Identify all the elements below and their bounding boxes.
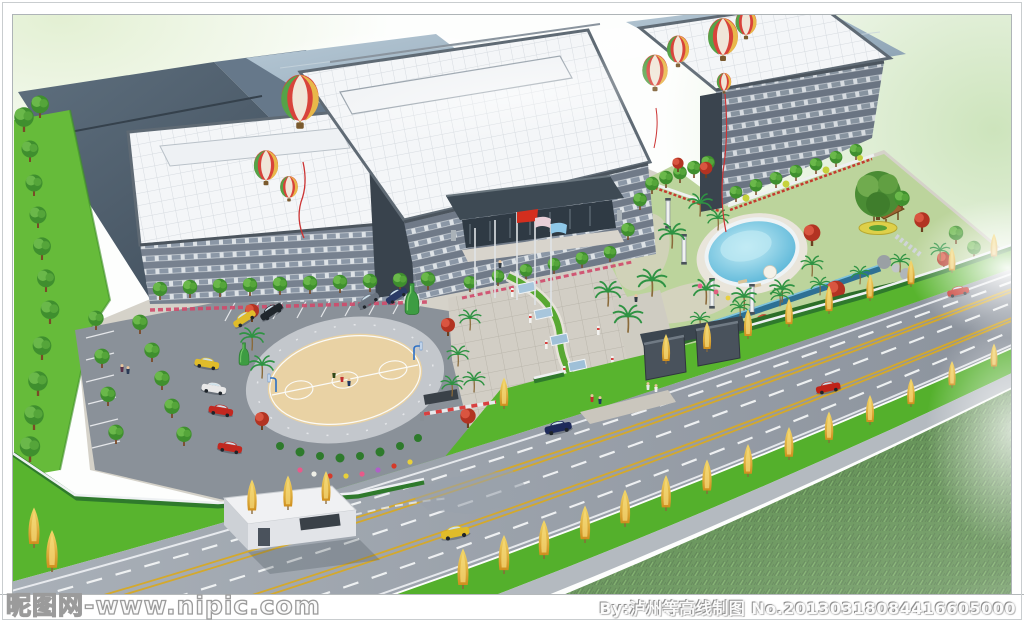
rendering-frame: 昵图网-www.nipic.com By:泸州等高线制图 No.20130318… — [0, 0, 1024, 622]
watermark-left: 昵图网-www.nipic.com — [6, 586, 321, 622]
pool-umbrella — [764, 266, 777, 279]
rendering-photo — [12, 14, 1012, 595]
watermark-right: By:泸州等高线制图 No.20130318084416605000 — [599, 595, 1016, 619]
rendering-canvas — [12, 14, 1012, 595]
big-tree — [855, 171, 901, 235]
